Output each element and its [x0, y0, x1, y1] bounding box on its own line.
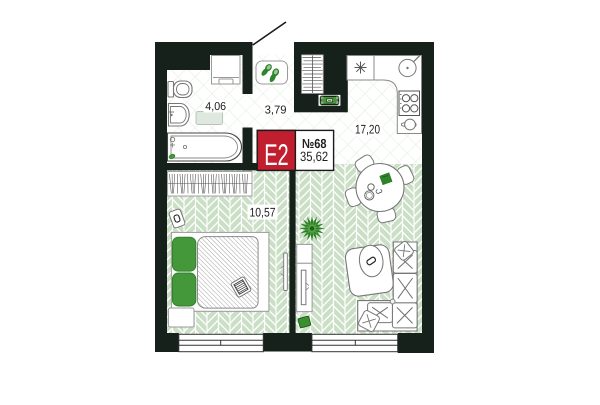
svg-text:3,79: 3,79 — [265, 104, 287, 116]
svg-text:35,62: 35,62 — [300, 149, 328, 164]
svg-text:4,06: 4,06 — [205, 101, 226, 113]
svg-text:17,20: 17,20 — [355, 123, 380, 137]
svg-text:10,57: 10,57 — [250, 205, 276, 219]
svg-text:E2: E2 — [264, 139, 289, 172]
